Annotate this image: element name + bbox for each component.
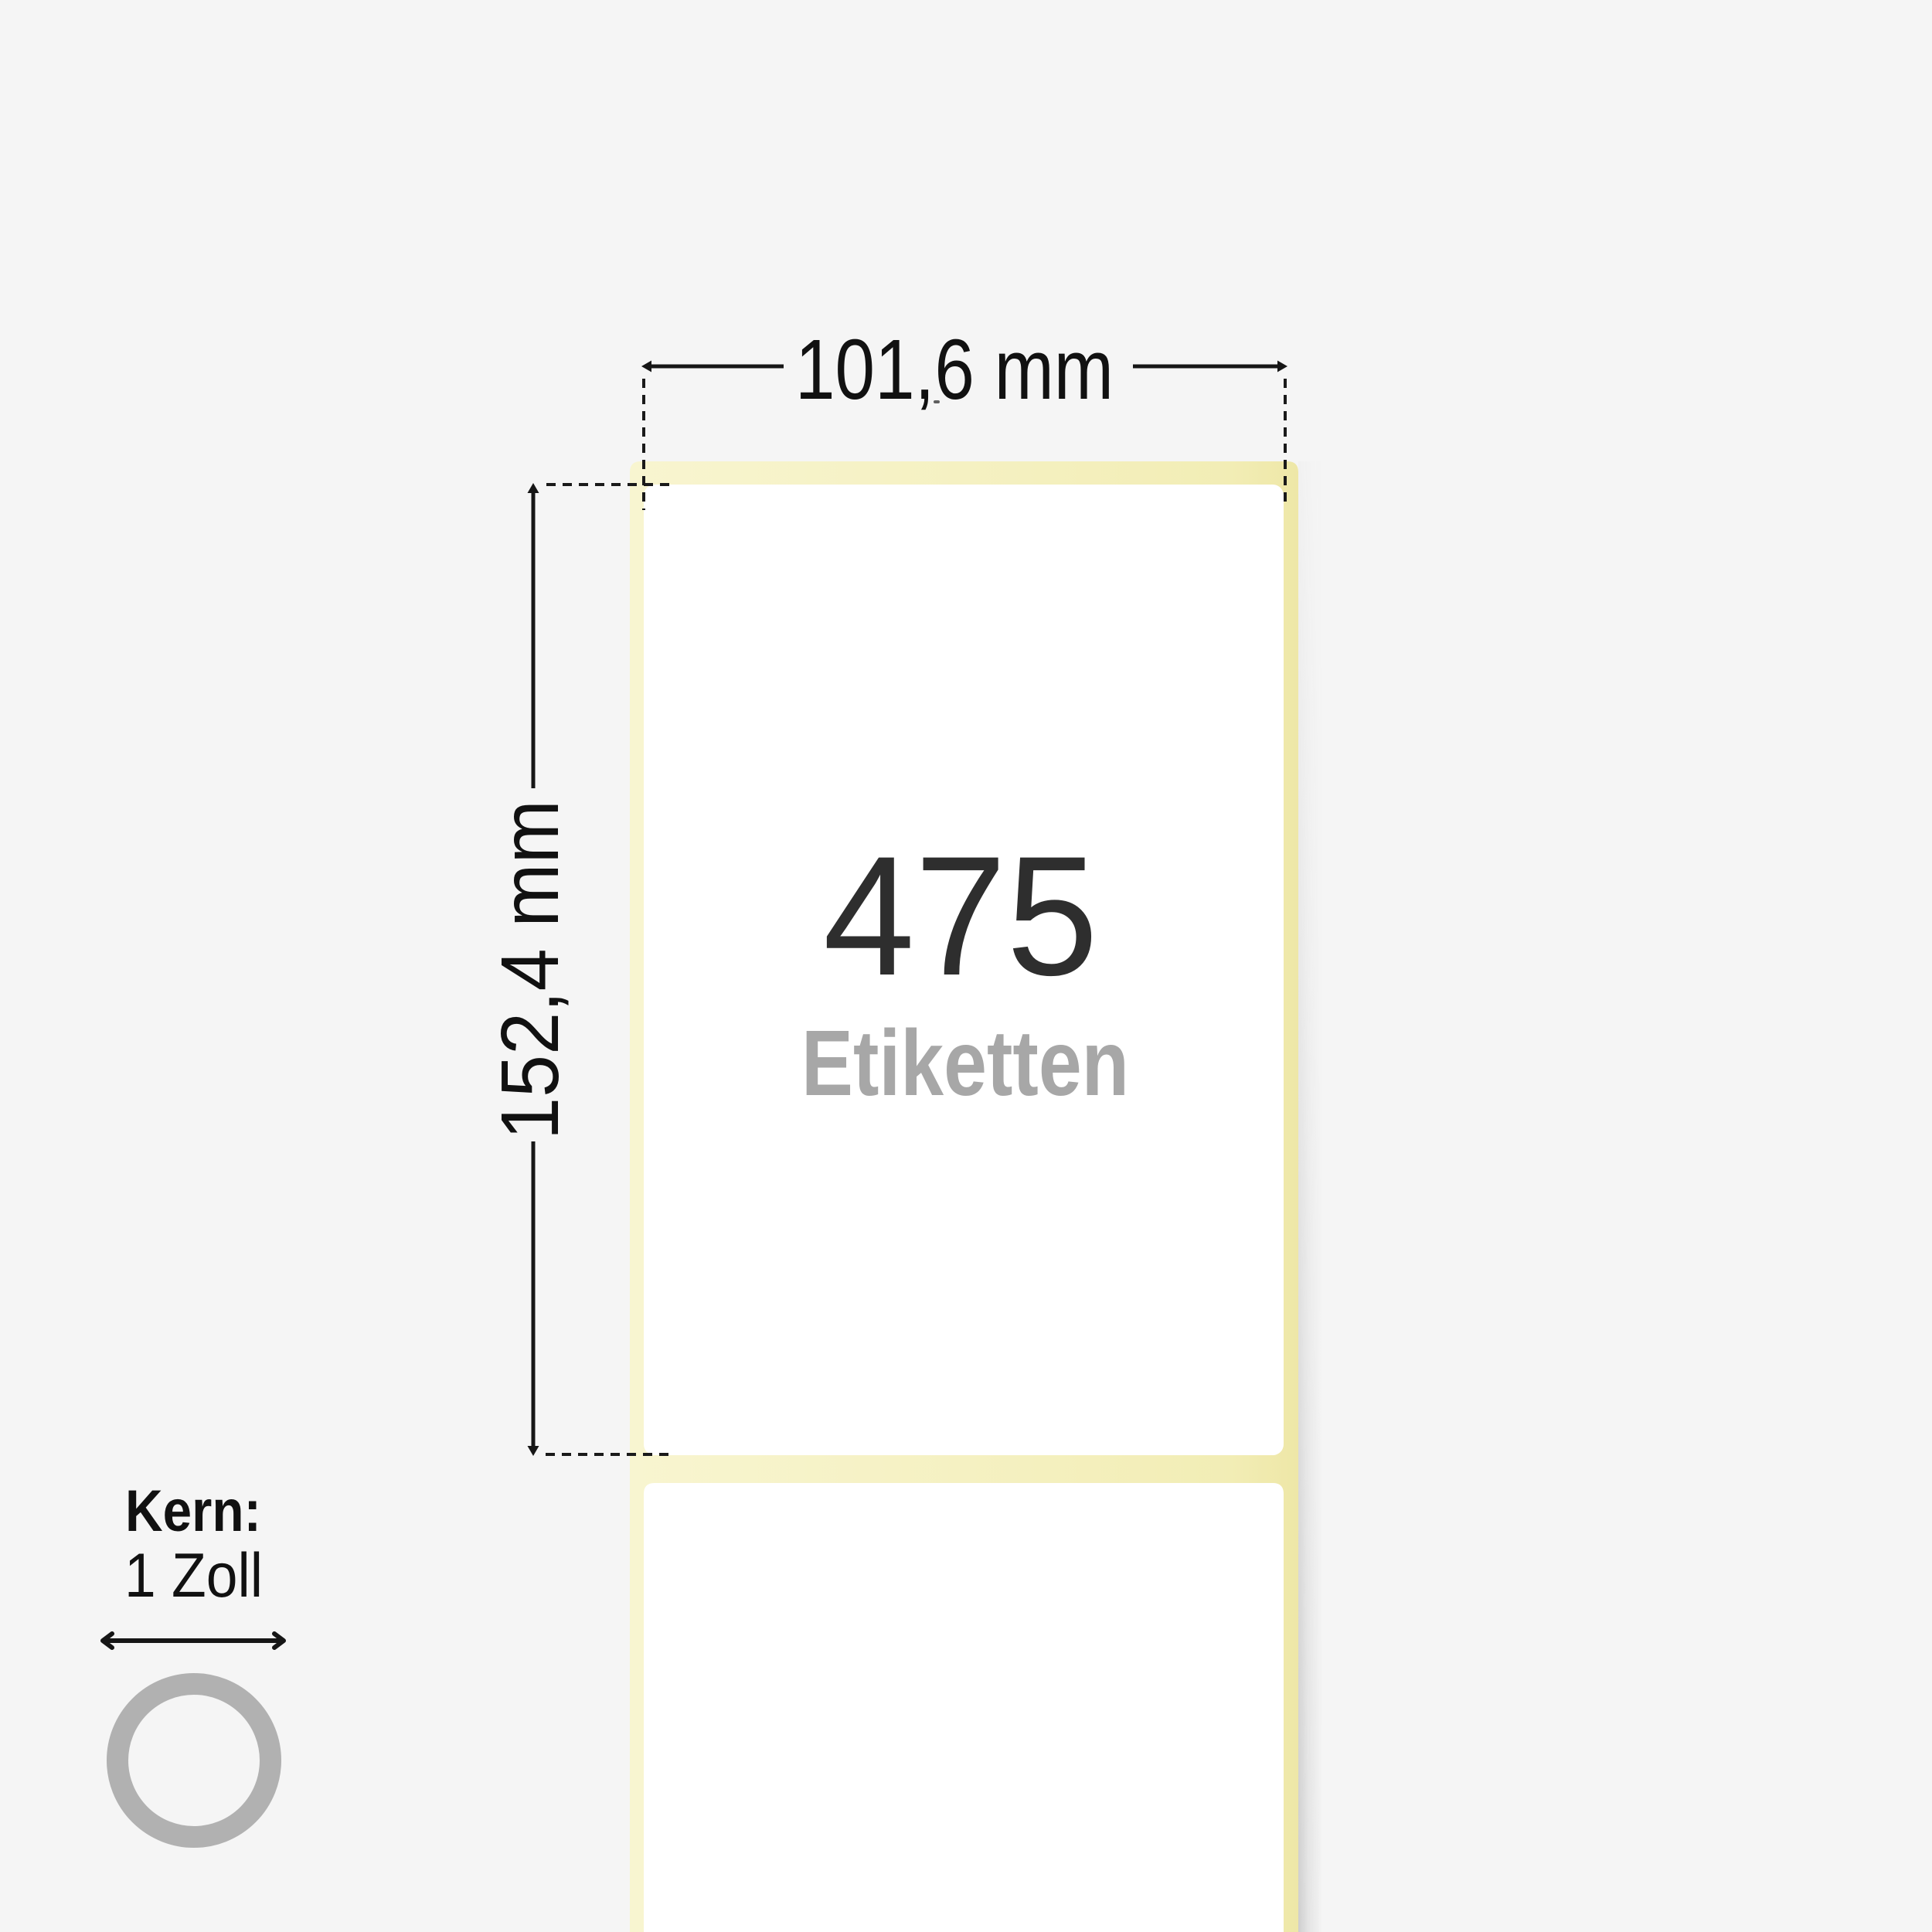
svg-text:1 Zoll: 1 Zoll	[124, 1541, 263, 1611]
svg-text:152,4 mm: 152,4 mm	[485, 800, 576, 1140]
svg-text:Etiketten: Etiketten	[801, 1010, 1129, 1115]
svg-text:101,6 mm: 101,6 mm	[795, 322, 1114, 417]
svg-text:475: 475	[823, 821, 1098, 1011]
svg-text:Kern:: Kern:	[125, 1478, 261, 1544]
